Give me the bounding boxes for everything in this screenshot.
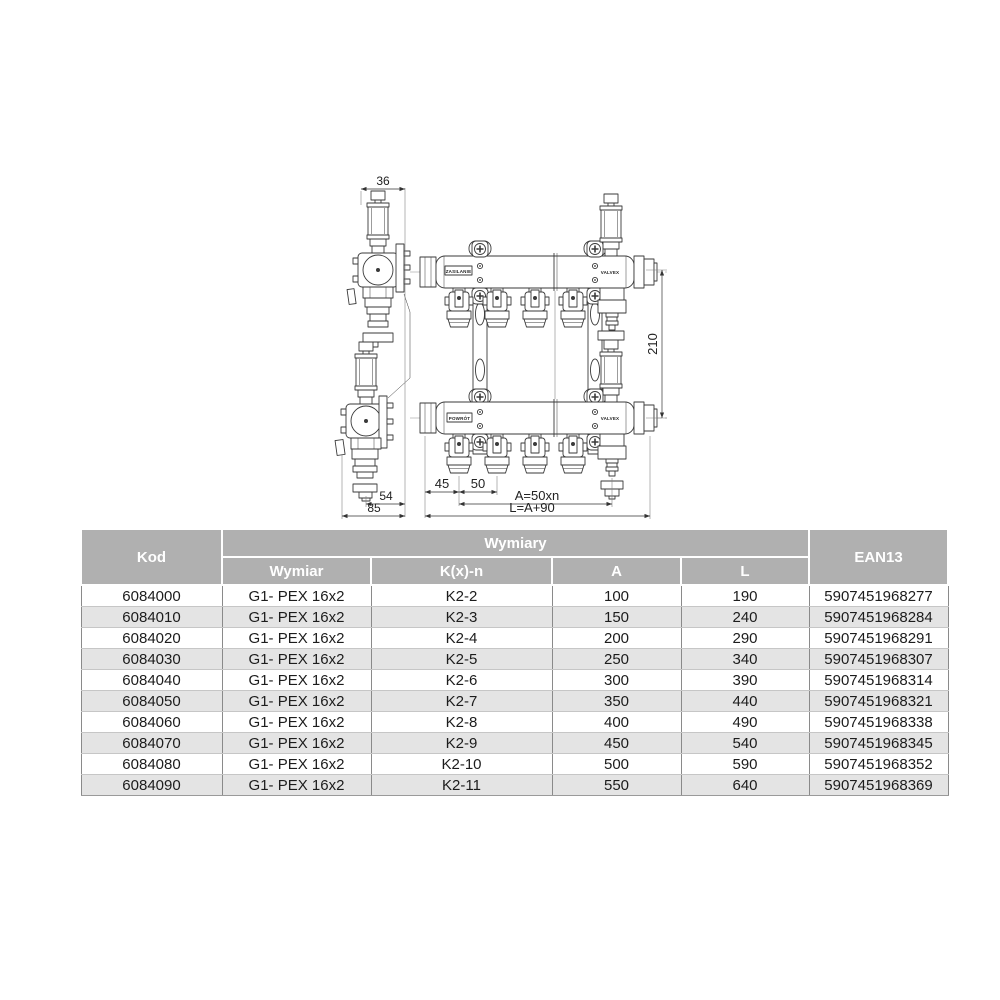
dim-54: 54 bbox=[379, 489, 393, 503]
cell-l: 290 bbox=[681, 628, 809, 649]
cell-a: 150 bbox=[552, 607, 681, 628]
cell-l: 590 bbox=[681, 754, 809, 775]
header-wymiar: Wymiar bbox=[222, 557, 371, 585]
return-bar: POWRÓT VALVEX bbox=[420, 399, 657, 437]
dim-l-formula: L=A+90 bbox=[509, 500, 555, 515]
supply-bar: ZASILANIE VALVEX bbox=[420, 253, 657, 291]
cell-ean13: 5907451968291 bbox=[809, 628, 948, 649]
side-assembly-bottom bbox=[335, 333, 393, 501]
outlet-valve bbox=[521, 434, 549, 473]
dim-210: 210 bbox=[645, 333, 660, 355]
table-row: 6084040 G1- PEX 16x2 K2-6 300 390 590745… bbox=[81, 670, 948, 691]
table-row: 6084070 G1- PEX 16x2 K2-9 450 540 590745… bbox=[81, 733, 948, 754]
cell-l: 640 bbox=[681, 775, 809, 796]
cell-kxn: K2-2 bbox=[371, 585, 552, 607]
outlet-valve bbox=[559, 288, 587, 327]
cell-wymiar: G1- PEX 16x2 bbox=[222, 691, 371, 712]
cell-l: 540 bbox=[681, 733, 809, 754]
cell-wymiar: G1- PEX 16x2 bbox=[222, 712, 371, 733]
manifold-technical-drawing: ZASILANIE VALVEX bbox=[0, 0, 1000, 1000]
return-label: POWRÓT bbox=[449, 414, 470, 421]
air-vent-upper bbox=[600, 194, 622, 256]
cell-ean13: 5907451968345 bbox=[809, 733, 948, 754]
header-ean13: EAN13 bbox=[809, 529, 948, 585]
table-row: 6084000 G1- PEX 16x2 K2-2 100 190 590745… bbox=[81, 585, 948, 607]
brand-logo-lower: VALVEX bbox=[601, 416, 620, 421]
cell-a: 200 bbox=[552, 628, 681, 649]
cell-l: 340 bbox=[681, 649, 809, 670]
table-row: 6084020 G1- PEX 16x2 K2-4 200 290 590745… bbox=[81, 628, 948, 649]
cell-kod: 6084000 bbox=[81, 585, 222, 607]
cell-a: 550 bbox=[552, 775, 681, 796]
cell-ean13: 5907451968352 bbox=[809, 754, 948, 775]
cell-kxn: K2-5 bbox=[371, 649, 552, 670]
outlet-valve bbox=[483, 434, 511, 473]
supply-label: ZASILANIE bbox=[446, 269, 472, 274]
table-row: 6084080 G1- PEX 16x2 K2-10 500 590 59074… bbox=[81, 754, 948, 775]
cell-kxn: K2-6 bbox=[371, 670, 552, 691]
cell-wymiar: G1- PEX 16x2 bbox=[222, 670, 371, 691]
outlet-valve bbox=[483, 288, 511, 327]
dim-36: 36 bbox=[376, 174, 390, 188]
cell-l: 390 bbox=[681, 670, 809, 691]
valve-handwheel bbox=[598, 331, 624, 340]
cell-wymiar: G1- PEX 16x2 bbox=[222, 733, 371, 754]
cell-ean13: 5907451968277 bbox=[809, 585, 948, 607]
outlet-valve bbox=[445, 288, 473, 327]
cell-kxn: K2-11 bbox=[371, 775, 552, 796]
cell-wymiar: G1- PEX 16x2 bbox=[222, 754, 371, 775]
cell-ean13: 5907451968307 bbox=[809, 649, 948, 670]
table-row: 6084010 G1- PEX 16x2 K2-3 150 240 590745… bbox=[81, 607, 948, 628]
cell-a: 350 bbox=[552, 691, 681, 712]
cell-l: 440 bbox=[681, 691, 809, 712]
cell-kxn: K2-10 bbox=[371, 754, 552, 775]
outlet-valve bbox=[445, 434, 473, 473]
front-view: ZASILANIE VALVEX bbox=[410, 194, 670, 499]
outlet-valve bbox=[559, 434, 587, 473]
dim-50: 50 bbox=[471, 476, 485, 491]
header-wymiary-group: Wymiary bbox=[222, 529, 809, 557]
cell-a: 300 bbox=[552, 670, 681, 691]
cell-kod: 6084040 bbox=[81, 670, 222, 691]
table-row: 6084050 G1- PEX 16x2 K2-7 350 440 590745… bbox=[81, 691, 948, 712]
cell-wymiar: G1- PEX 16x2 bbox=[222, 607, 371, 628]
cell-kod: 6084090 bbox=[81, 775, 222, 796]
outlet-valve bbox=[521, 288, 549, 327]
cell-ean13: 5907451968321 bbox=[809, 691, 948, 712]
wall-bracket-line bbox=[388, 294, 410, 398]
header-l: L bbox=[681, 557, 809, 585]
cell-l: 240 bbox=[681, 607, 809, 628]
cell-kod: 6084030 bbox=[81, 649, 222, 670]
cell-kod: 6084010 bbox=[81, 607, 222, 628]
cell-kod: 6084060 bbox=[81, 712, 222, 733]
header-kxn: K(x)-n bbox=[371, 557, 552, 585]
cell-wymiar: G1- PEX 16x2 bbox=[222, 628, 371, 649]
cell-kod: 6084070 bbox=[81, 733, 222, 754]
side-view bbox=[335, 191, 410, 501]
cell-kxn: K2-8 bbox=[371, 712, 552, 733]
cell-kod: 6084050 bbox=[81, 691, 222, 712]
cell-wymiar: G1- PEX 16x2 bbox=[222, 649, 371, 670]
table-body: 6084000 G1- PEX 16x2 K2-2 100 190 590745… bbox=[81, 585, 948, 796]
table-row: 6084030 G1- PEX 16x2 K2-5 250 340 590745… bbox=[81, 649, 948, 670]
cell-a: 250 bbox=[552, 649, 681, 670]
cell-a: 500 bbox=[552, 754, 681, 775]
drain-valve-lower bbox=[598, 434, 626, 476]
cell-l: 490 bbox=[681, 712, 809, 733]
cell-kod: 6084020 bbox=[81, 628, 222, 649]
cell-kxn: K2-3 bbox=[371, 607, 552, 628]
cell-ean13: 5907451968338 bbox=[809, 712, 948, 733]
cell-wymiar: G1- PEX 16x2 bbox=[222, 585, 371, 607]
cell-a: 400 bbox=[552, 712, 681, 733]
header-kod: Kod bbox=[81, 529, 222, 585]
table-header: Kod Wymiary EAN13 Wymiar K(x)-n A L bbox=[81, 529, 948, 585]
air-vent-lower bbox=[600, 340, 622, 402]
cell-ean13: 5907451968369 bbox=[809, 775, 948, 796]
cell-kxn: K2-7 bbox=[371, 691, 552, 712]
cell-ean13: 5907451968314 bbox=[809, 670, 948, 691]
product-spec-table: Kod Wymiary EAN13 Wymiar K(x)-n A L 6084… bbox=[80, 528, 949, 796]
cell-kod: 6084080 bbox=[81, 754, 222, 775]
cell-a: 100 bbox=[552, 585, 681, 607]
cell-wymiar: G1- PEX 16x2 bbox=[222, 775, 371, 796]
cell-ean13: 5907451968284 bbox=[809, 607, 948, 628]
table-row: 6084060 G1- PEX 16x2 K2-8 400 490 590745… bbox=[81, 712, 948, 733]
cell-a: 450 bbox=[552, 733, 681, 754]
dim-45: 45 bbox=[435, 476, 449, 491]
dim-85: 85 bbox=[367, 501, 381, 515]
header-a: A bbox=[552, 557, 681, 585]
brand-logo-upper: VALVEX bbox=[601, 270, 620, 275]
table-row: 6084090 G1- PEX 16x2 K2-11 550 640 59074… bbox=[81, 775, 948, 796]
cell-l: 190 bbox=[681, 585, 809, 607]
cell-kxn: K2-4 bbox=[371, 628, 552, 649]
cell-kxn: K2-9 bbox=[371, 733, 552, 754]
